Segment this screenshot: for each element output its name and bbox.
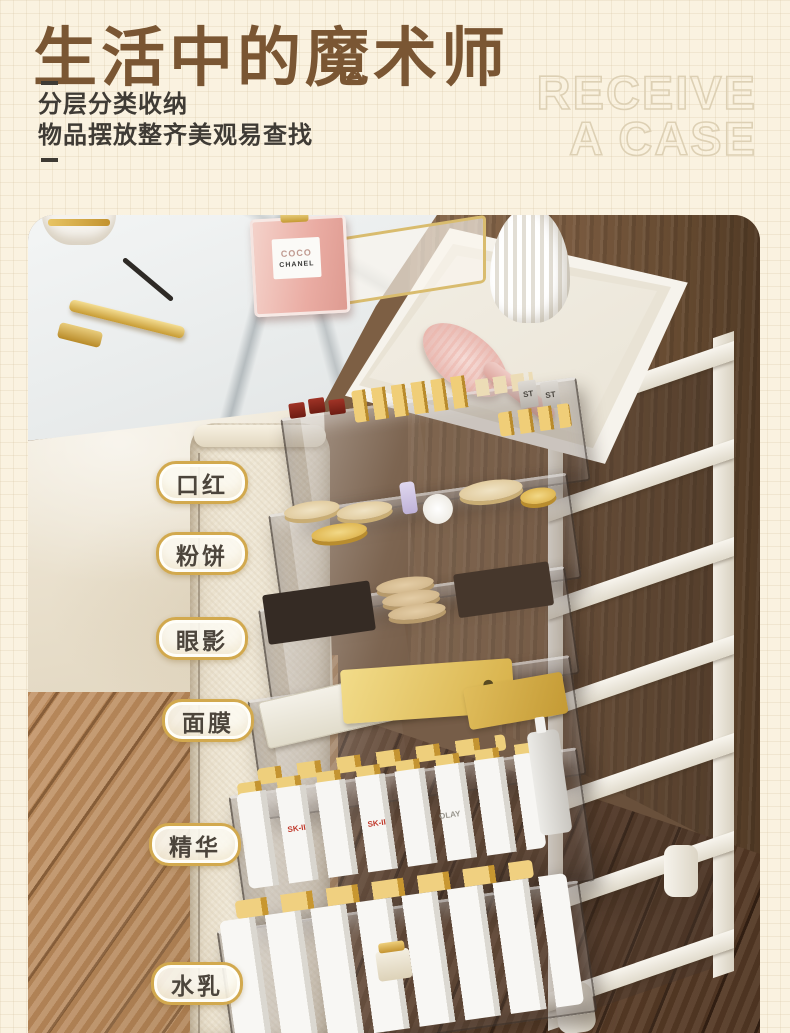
category-label-text: 水乳 xyxy=(171,967,223,1001)
category-label-essence: 精华 xyxy=(149,823,241,866)
white-ribbed-vase xyxy=(490,215,570,323)
lipstick-box xyxy=(308,397,326,414)
subtitle-line-1: 分层分类收纳 xyxy=(38,89,313,120)
category-label-text: 眼影 xyxy=(176,622,228,656)
promo-page: { "page": { "background_color": "#faf2e0… xyxy=(0,0,790,1033)
cabinet-foot xyxy=(664,845,698,897)
gold-jar xyxy=(519,485,557,506)
jar-gold-cap xyxy=(378,940,405,954)
subtitle-top-dash xyxy=(41,81,58,85)
perfume-brand-line1: COCO xyxy=(281,247,312,259)
category-label-mask: 面膜 xyxy=(162,699,254,742)
perfume-cap xyxy=(280,215,308,223)
category-label-text: 精华 xyxy=(169,828,221,862)
packet-text: ST xyxy=(522,389,533,399)
subtitle-bottom-dash xyxy=(41,158,58,162)
perfume-bottle: COCO CHANEL xyxy=(250,215,351,317)
powder-puff xyxy=(421,492,455,526)
perfume-label: COCO CHANEL xyxy=(272,237,322,279)
gold-mascara xyxy=(58,275,218,365)
packet-text: ST xyxy=(545,390,556,400)
category-label-powder: 粉饼 xyxy=(156,532,248,575)
lipstick-box xyxy=(288,402,306,419)
bottle-pump xyxy=(534,716,546,733)
subtitle-line-2: 物品摆放整齐美观易查找 xyxy=(38,120,313,151)
small-jar xyxy=(375,948,413,982)
jar-gold-band xyxy=(48,219,110,226)
category-label-eyeshadow: 眼影 xyxy=(156,617,248,660)
subtitle: 分层分类收纳 物品摆放整齐美观易查找 xyxy=(38,89,313,151)
product-photo: COCO CHANEL ST ST xyxy=(28,215,760,1033)
category-label-text: 口红 xyxy=(176,466,228,500)
category-label-lipstick: 口红 xyxy=(156,461,248,504)
mascara-cap xyxy=(57,322,104,348)
silver-packet: ST xyxy=(517,379,539,408)
lipstick-box xyxy=(328,398,346,415)
category-label-toner: 水乳 xyxy=(151,962,243,1005)
watermark-text: RECEIVE A CASE xyxy=(537,70,757,162)
category-label-text: 面膜 xyxy=(182,704,234,738)
perfume-brand-line2: CHANEL xyxy=(279,260,314,269)
gold-lipstick-row xyxy=(498,403,573,437)
category-label-text: 粉饼 xyxy=(176,537,228,571)
drawer-toner xyxy=(217,880,598,1033)
watermark-line-1: RECEIVE xyxy=(537,70,757,116)
page-title: 生活中的魔术师 xyxy=(33,26,509,90)
watermark-line-2: A CASE xyxy=(537,116,757,162)
